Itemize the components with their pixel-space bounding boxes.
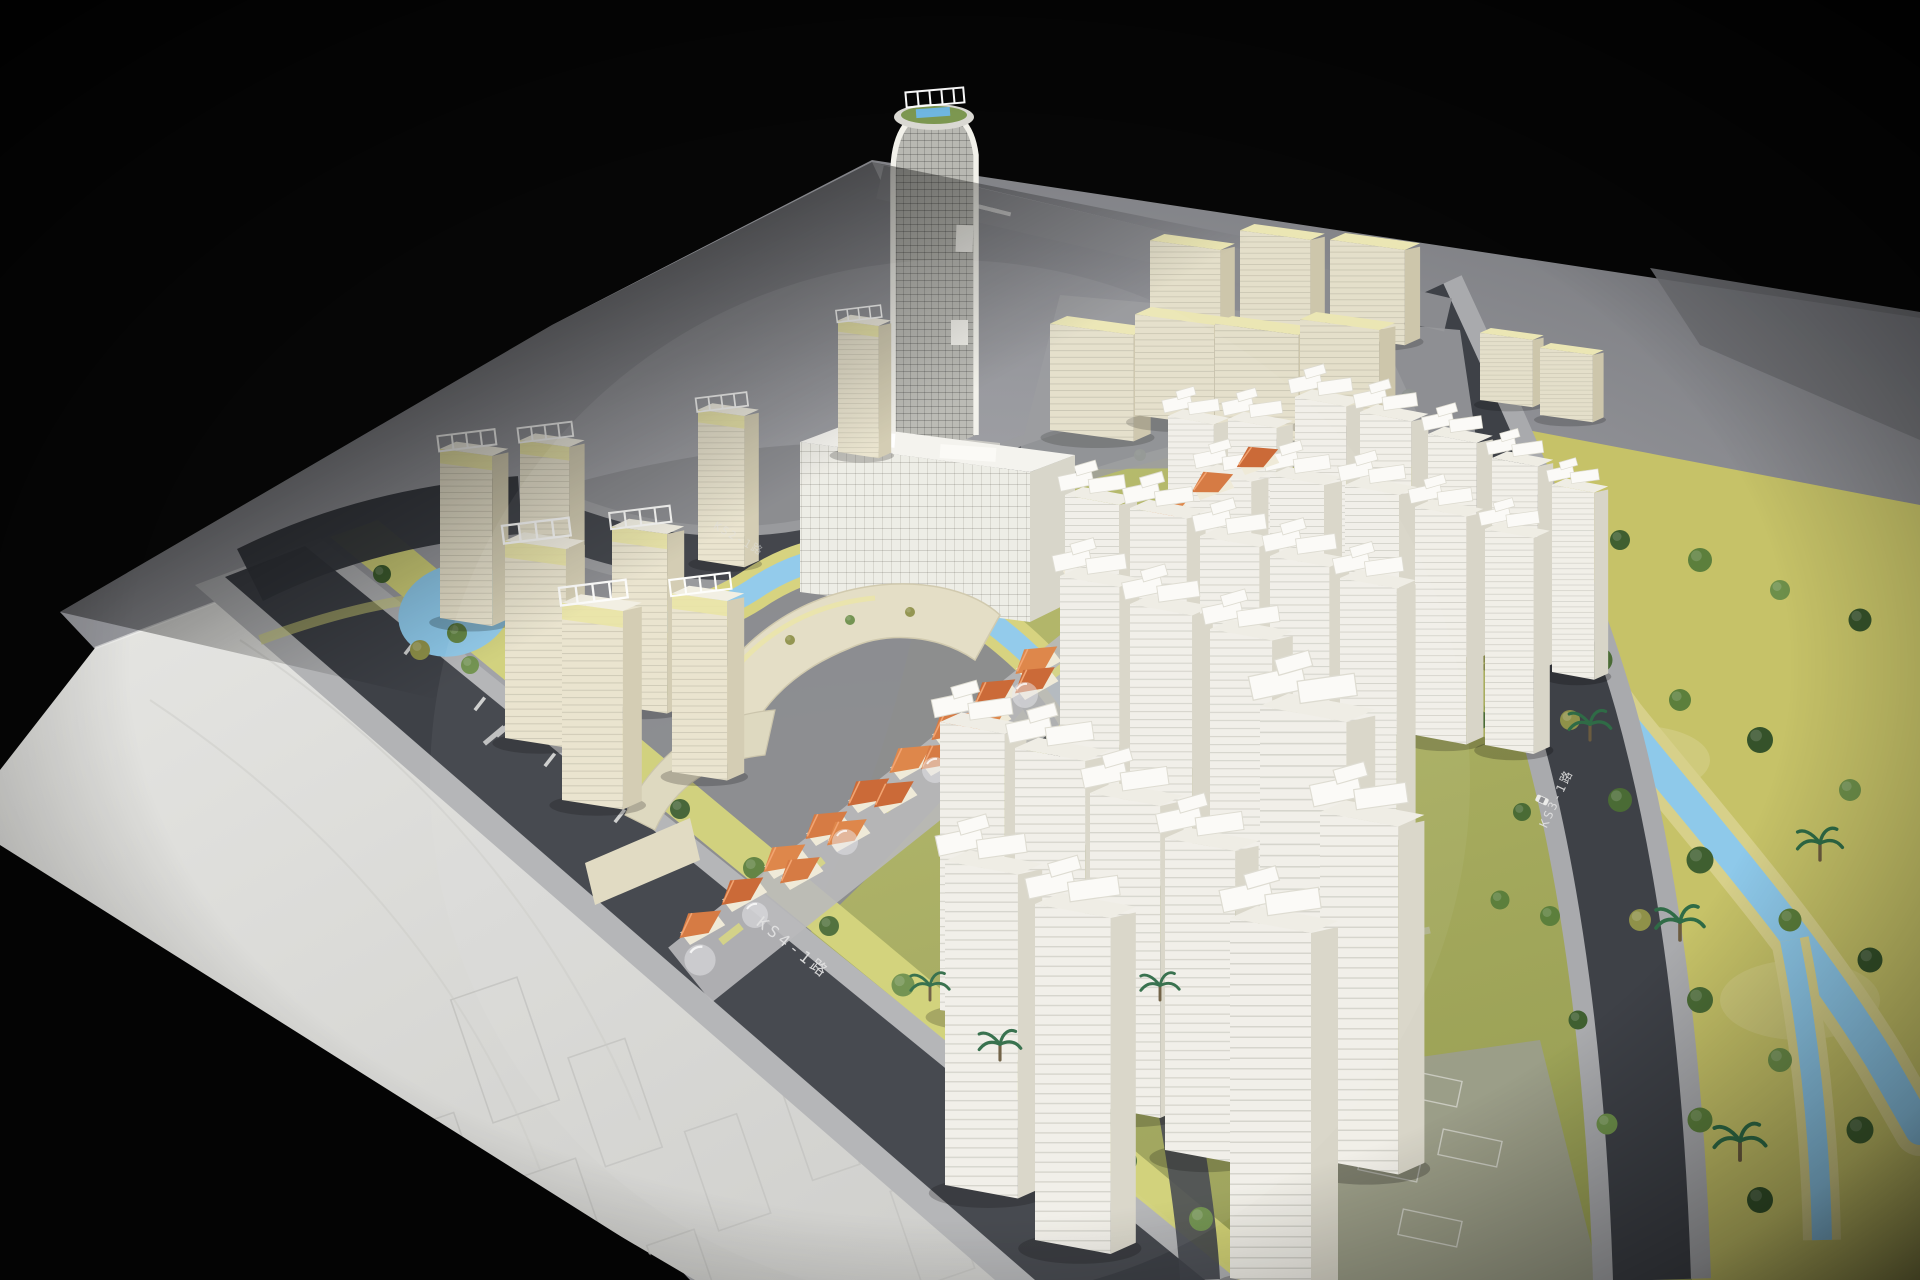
model-photo: KS4-1路 KS3-1路 KS2-1路 xyxy=(0,0,1920,1280)
scale-model-scene: KS4-1路 KS3-1路 KS2-1路 xyxy=(0,0,1920,1280)
